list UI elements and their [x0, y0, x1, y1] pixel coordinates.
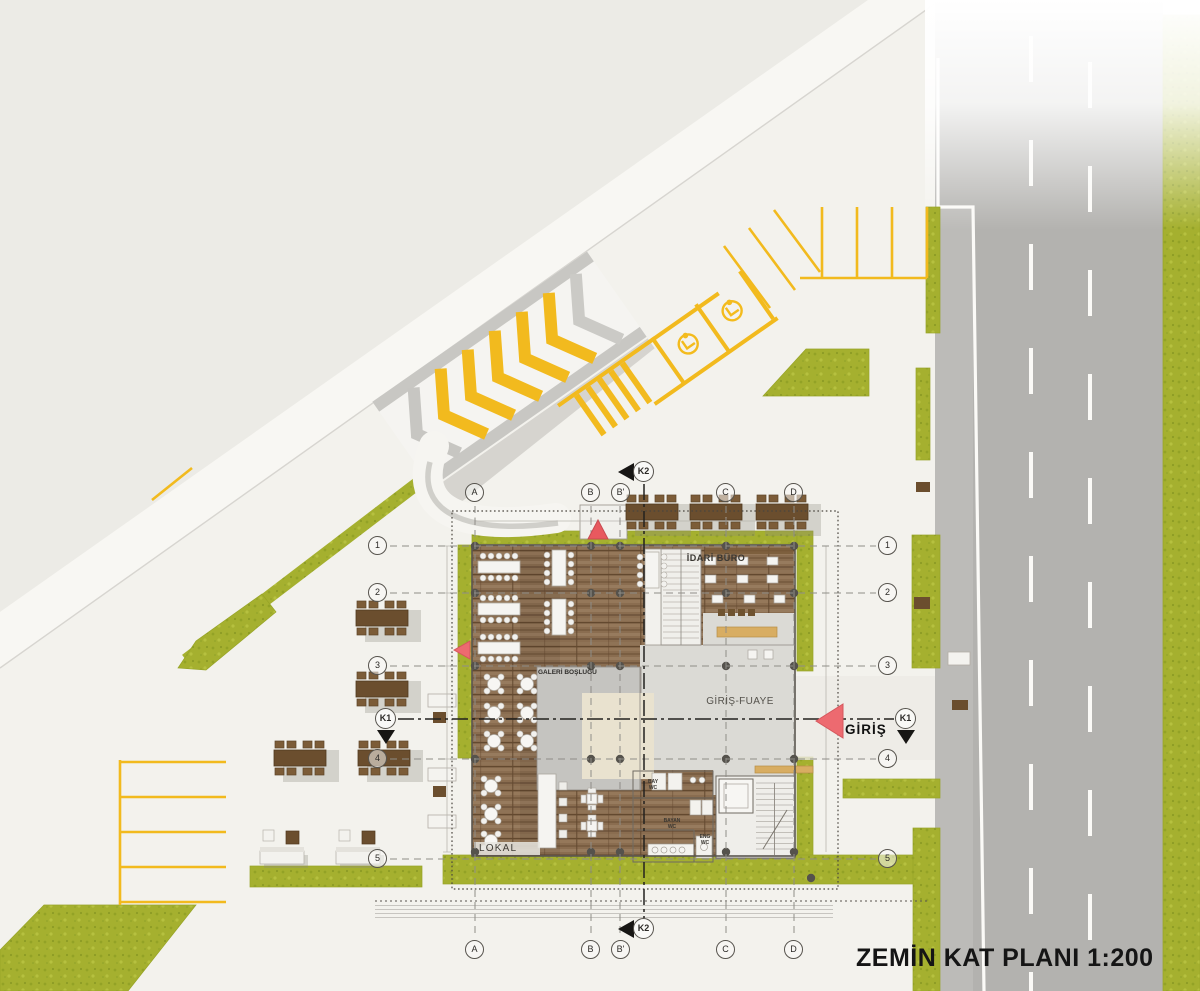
- grid-bubble-row-3-right: 3: [878, 656, 897, 675]
- gallery-void-lower: [582, 693, 654, 779]
- grid-bubble-row-1-left: 1: [368, 536, 387, 555]
- grid-bubble-col-b-top: B: [581, 483, 600, 502]
- grid-bubble-row-5-left: 5: [368, 849, 387, 868]
- site-plan-canvas: A B B' C D A B B' C D 1 2 3 4 5 1 2 3 4 …: [0, 0, 1200, 991]
- room-label-eng-wc: ENG WC: [696, 835, 714, 847]
- grid-bubble-col-a-bottom: A: [465, 940, 484, 959]
- section-marker-k1-right: K1: [895, 708, 916, 729]
- grid-bubble-row-1-right: 1: [878, 536, 897, 555]
- section-marker-k2-bottom: K2: [633, 918, 654, 939]
- grid-bubble-row-2-right: 2: [878, 583, 897, 602]
- room-label-galeri-boslugu: GALERİ BOŞLUĞU: [538, 669, 597, 676]
- outdoor-bench: [755, 766, 813, 773]
- entrance-label: GİRİŞ: [845, 722, 887, 737]
- grid-bubble-row-3-left: 3: [368, 656, 387, 675]
- grid-bubble-col-bp-top: B': [611, 483, 630, 502]
- room-label-bayan-wc: BAYAN WC: [659, 819, 685, 831]
- grid-bubble-col-d-bottom: D: [784, 940, 803, 959]
- room-label-lokal: LOKAL: [479, 843, 517, 854]
- grid-bubble-col-c-top: C: [716, 483, 735, 502]
- room-label-idari-buro: İDARİ BÜRO: [676, 553, 756, 563]
- grid-bubble-row-4-left: 4: [368, 749, 387, 768]
- grid-bubble-col-b-bottom: B: [581, 940, 600, 959]
- road: [925, 0, 1200, 991]
- grid-bubble-col-bp-bottom: B': [611, 940, 630, 959]
- floor-plan-drawing: [0, 0, 1200, 991]
- road-fade: [925, 0, 1200, 230]
- room-label-giris-fuaye: GİRİŞ-FUAYE: [698, 696, 782, 707]
- grid-bubble-row-5-right: 5: [878, 849, 897, 868]
- grid-bubble-col-a-top: A: [465, 483, 484, 502]
- grid-bubble-row-4-right: 4: [878, 749, 897, 768]
- grid-bubble-row-2-left: 2: [368, 583, 387, 602]
- central-stair: [661, 549, 701, 645]
- grid-bubble-col-c-bottom: C: [716, 940, 735, 959]
- bar-counter: [538, 774, 556, 848]
- staircase: [716, 776, 795, 858]
- section-marker-k1-left: K1: [375, 708, 396, 729]
- room-label-bay-wc: BAY WC: [644, 780, 662, 792]
- drawing-title: ZEMİN KAT PLANI 1:200: [856, 944, 1154, 973]
- section-marker-k2-top: K2: [633, 461, 654, 482]
- grid-bubble-col-d-top: D: [784, 483, 803, 502]
